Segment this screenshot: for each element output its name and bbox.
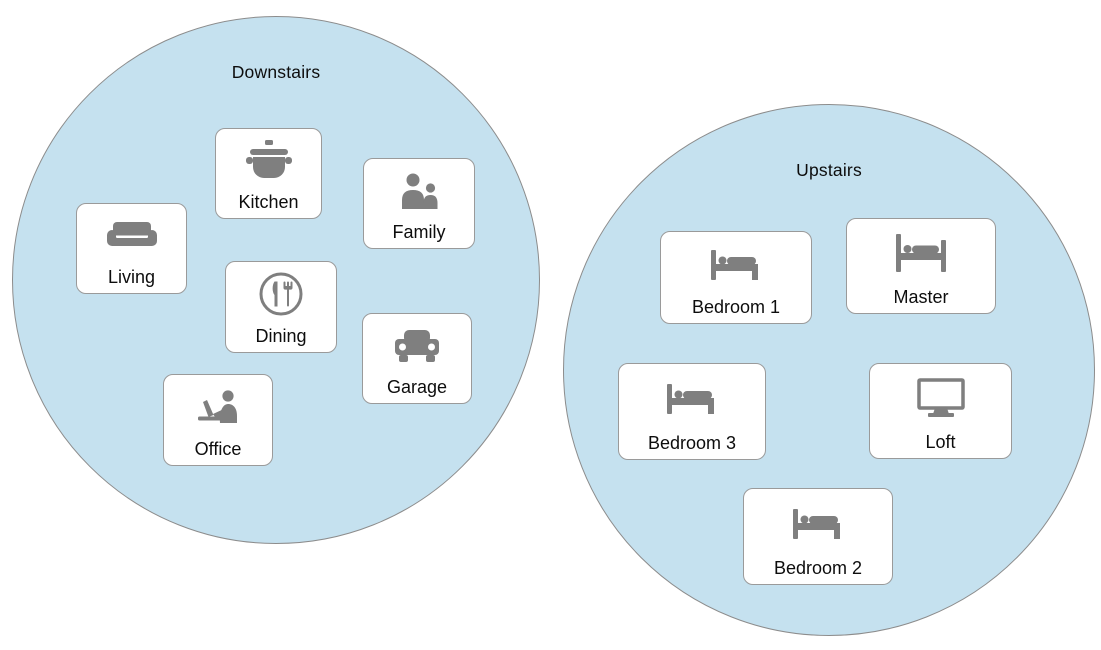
room-label: Dining [255, 326, 306, 347]
bed-icon [744, 489, 892, 558]
pot-icon [216, 129, 321, 192]
zone-label-upstairs: Upstairs [564, 160, 1094, 181]
room-card-dining: Dining [225, 261, 337, 353]
rooms-zones-diagram: Downstairs Upstairs Kitchen Fami [0, 0, 1101, 650]
room-card-office: Office [163, 374, 273, 466]
car-icon [363, 314, 471, 377]
room-label: Living [108, 267, 155, 288]
room-label: Loft [925, 432, 955, 453]
room-card-master: Master [846, 218, 996, 314]
room-label: Bedroom 3 [648, 433, 736, 454]
room-label: Master [893, 287, 948, 308]
room-label: Garage [387, 377, 447, 398]
room-label: Family [393, 222, 446, 243]
monitor-icon [870, 364, 1011, 432]
room-card-kitchen: Kitchen [215, 128, 322, 219]
bed-icon [619, 364, 765, 433]
room-label: Bedroom 1 [692, 297, 780, 318]
room-card-bedroom-1: Bedroom 1 [660, 231, 812, 324]
room-label: Office [195, 439, 242, 460]
room-card-loft: Loft [869, 363, 1012, 459]
bed-icon [661, 232, 811, 297]
room-label: Kitchen [238, 192, 298, 213]
cutlery-icon [226, 262, 336, 326]
bed-posts-icon [847, 219, 995, 287]
zone-label-downstairs: Downstairs [13, 62, 539, 83]
people-icon [364, 159, 474, 222]
room-label: Bedroom 2 [774, 558, 862, 579]
room-card-garage: Garage [362, 313, 472, 404]
person-laptop-icon [164, 375, 272, 439]
room-card-bedroom-2: Bedroom 2 [743, 488, 893, 585]
couch-icon [77, 204, 186, 267]
room-card-bedroom-3: Bedroom 3 [618, 363, 766, 460]
room-card-family: Family [363, 158, 475, 249]
room-card-living: Living [76, 203, 187, 294]
